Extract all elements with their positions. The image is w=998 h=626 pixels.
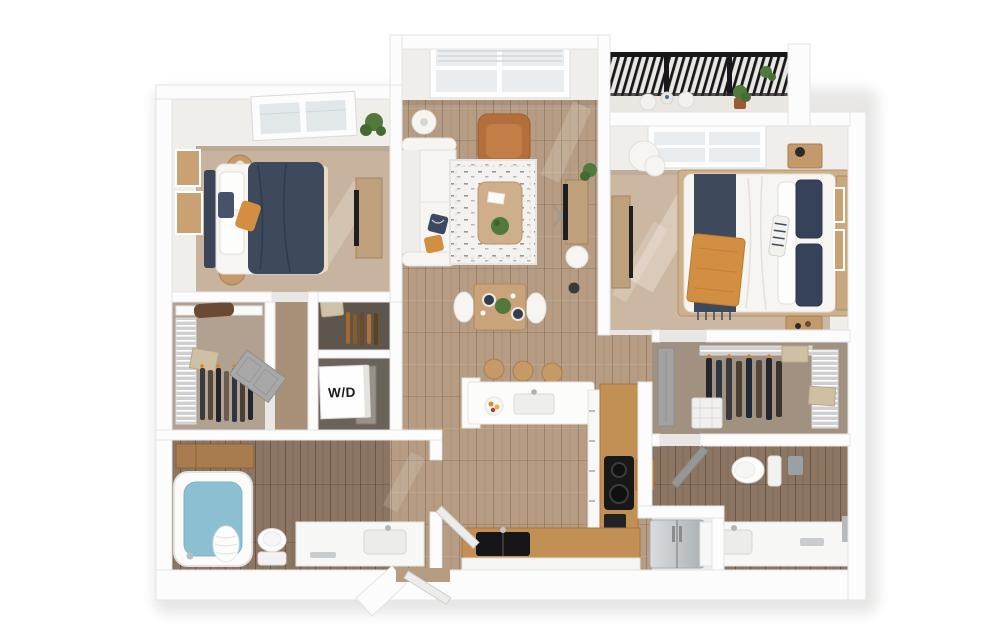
dining-chair bbox=[526, 293, 546, 323]
hallway-floor bbox=[275, 302, 308, 430]
laundry-closet: W/D bbox=[319, 365, 376, 424]
railing-top-rail bbox=[606, 52, 790, 57]
console-top bbox=[566, 180, 588, 244]
wall-bathroom1-north bbox=[156, 430, 442, 440]
cup bbox=[665, 95, 669, 99]
lounge-chair-seat bbox=[645, 156, 665, 176]
bed-queen bbox=[678, 170, 850, 320]
corner-plant-leaf bbox=[580, 171, 590, 181]
headboard bbox=[204, 170, 216, 268]
vanity-tray bbox=[310, 552, 336, 558]
bistro-chair bbox=[678, 92, 694, 108]
bed-queen bbox=[204, 162, 328, 274]
railing-post bbox=[664, 54, 669, 96]
waste-bin bbox=[788, 456, 803, 475]
bedroom1-skylight bbox=[251, 91, 357, 140]
speaker bbox=[569, 283, 580, 294]
wall-linen-laundry-divider bbox=[318, 350, 390, 358]
hanging-plant-leaf bbox=[768, 73, 776, 81]
wall-laundry-east bbox=[390, 302, 402, 440]
exterior-wall-east bbox=[848, 112, 866, 600]
exterior-wall-south bbox=[156, 570, 866, 600]
fruit-plate bbox=[485, 397, 503, 415]
wall-art bbox=[176, 192, 202, 234]
fridge-handle bbox=[679, 526, 682, 542]
patterned-pillow bbox=[218, 192, 234, 218]
sofa bbox=[402, 138, 456, 266]
vanity-tray bbox=[800, 538, 824, 546]
centerpiece-greens bbox=[495, 298, 511, 314]
tub-faucet bbox=[187, 553, 194, 560]
coffee-table bbox=[478, 182, 522, 244]
navy-pillow bbox=[796, 180, 822, 238]
floor-lamp-stem bbox=[420, 118, 428, 126]
floor-plan-canvas: W/D bbox=[0, 0, 998, 626]
sofa-armrest bbox=[402, 252, 456, 266]
book bbox=[487, 192, 504, 204]
wall-bedroom1-south-b bbox=[318, 292, 390, 302]
faucet bbox=[731, 525, 737, 531]
wall-bedroom2-north bbox=[610, 112, 850, 126]
wall-fridge-nook-east bbox=[712, 518, 724, 570]
wall-kitchen-east bbox=[638, 382, 652, 506]
bar-stool bbox=[513, 361, 533, 381]
balcony-plant-leaf bbox=[741, 92, 751, 102]
tv-screen bbox=[354, 190, 359, 246]
wall-bedroom1-south-a bbox=[172, 292, 272, 302]
table-plant bbox=[491, 217, 509, 235]
wall-bedroom2-south-b bbox=[706, 330, 850, 342]
storage-box bbox=[782, 346, 808, 362]
railing-bottom-rail bbox=[606, 93, 790, 96]
decor bbox=[795, 323, 801, 329]
plate bbox=[484, 295, 494, 305]
toilet bbox=[732, 456, 781, 486]
floor-plan-render: W/D bbox=[0, 0, 998, 626]
sink-basin bbox=[364, 530, 406, 554]
towel-bar bbox=[842, 516, 848, 542]
wire-shelving bbox=[176, 318, 196, 424]
wall-laundry-west bbox=[308, 292, 318, 440]
wall-art bbox=[834, 230, 844, 270]
refrigerator bbox=[650, 520, 704, 568]
cup bbox=[511, 294, 516, 299]
cabinet-handle bbox=[589, 410, 595, 412]
wall-closet2-south-a bbox=[652, 434, 660, 446]
fruit bbox=[491, 408, 495, 412]
cabinet-handle bbox=[589, 470, 595, 472]
tv-screen bbox=[563, 184, 568, 240]
fruit bbox=[495, 405, 500, 410]
cabinet-handle bbox=[589, 500, 595, 502]
dining-chair bbox=[454, 292, 474, 322]
kitchen-sink bbox=[514, 394, 554, 414]
balcony-side-wall bbox=[788, 44, 810, 126]
toilet bbox=[258, 529, 286, 566]
table-lamp bbox=[795, 147, 805, 157]
wall-art bbox=[834, 188, 844, 222]
plate bbox=[513, 309, 523, 319]
faucet bbox=[531, 389, 537, 395]
cooktop bbox=[604, 456, 634, 510]
faucet bbox=[385, 525, 391, 531]
media-console bbox=[612, 196, 630, 288]
navy-pillow bbox=[796, 244, 822, 306]
wall-living-bedroom2 bbox=[598, 35, 610, 335]
fruit bbox=[489, 402, 494, 407]
wall-bathroom1-east-a bbox=[430, 440, 442, 460]
exterior-wall-north-center bbox=[390, 35, 610, 49]
folded-towel bbox=[213, 526, 239, 562]
vanity bbox=[296, 522, 424, 566]
linen-cabinet bbox=[176, 444, 254, 468]
mustard-throw bbox=[687, 233, 746, 306]
bistro-chair bbox=[640, 94, 656, 110]
tv-screen bbox=[629, 206, 633, 278]
living-wall-shadow bbox=[402, 100, 598, 105]
washer-dryer-label: W/D bbox=[328, 385, 356, 401]
bar-stool bbox=[484, 359, 504, 379]
washer-dryer-cube: W/D bbox=[319, 365, 371, 419]
wall-closet2-south-b bbox=[700, 434, 850, 446]
wall-bedroom1-living bbox=[390, 85, 402, 302]
cabinet-handle bbox=[589, 440, 595, 442]
floor-lamp bbox=[566, 246, 588, 268]
storage-box bbox=[808, 386, 835, 406]
bedroom1-wall-shadow bbox=[196, 146, 390, 151]
sofa-back bbox=[402, 150, 420, 254]
decor bbox=[805, 321, 811, 327]
wall-bedroom2-south-a bbox=[652, 330, 660, 342]
dresser bbox=[356, 178, 382, 258]
leather-armchair bbox=[478, 114, 530, 164]
laundry-basket bbox=[692, 398, 722, 428]
table-plant-leaf bbox=[494, 220, 500, 226]
railing-post bbox=[727, 54, 732, 96]
cup bbox=[481, 311, 486, 316]
bar-stool bbox=[542, 363, 562, 383]
wall-bathroom1-east-b bbox=[430, 512, 442, 570]
nightstand bbox=[788, 144, 822, 168]
bedroom2-window bbox=[648, 126, 766, 168]
cabinet-fronts bbox=[462, 558, 640, 570]
exterior-wall-west bbox=[156, 85, 172, 600]
fridge-handle bbox=[672, 526, 675, 542]
duffel-bag bbox=[194, 302, 235, 319]
faucet bbox=[500, 527, 506, 533]
wall-fridge-nook-north bbox=[638, 506, 724, 518]
wall-art bbox=[176, 150, 200, 186]
